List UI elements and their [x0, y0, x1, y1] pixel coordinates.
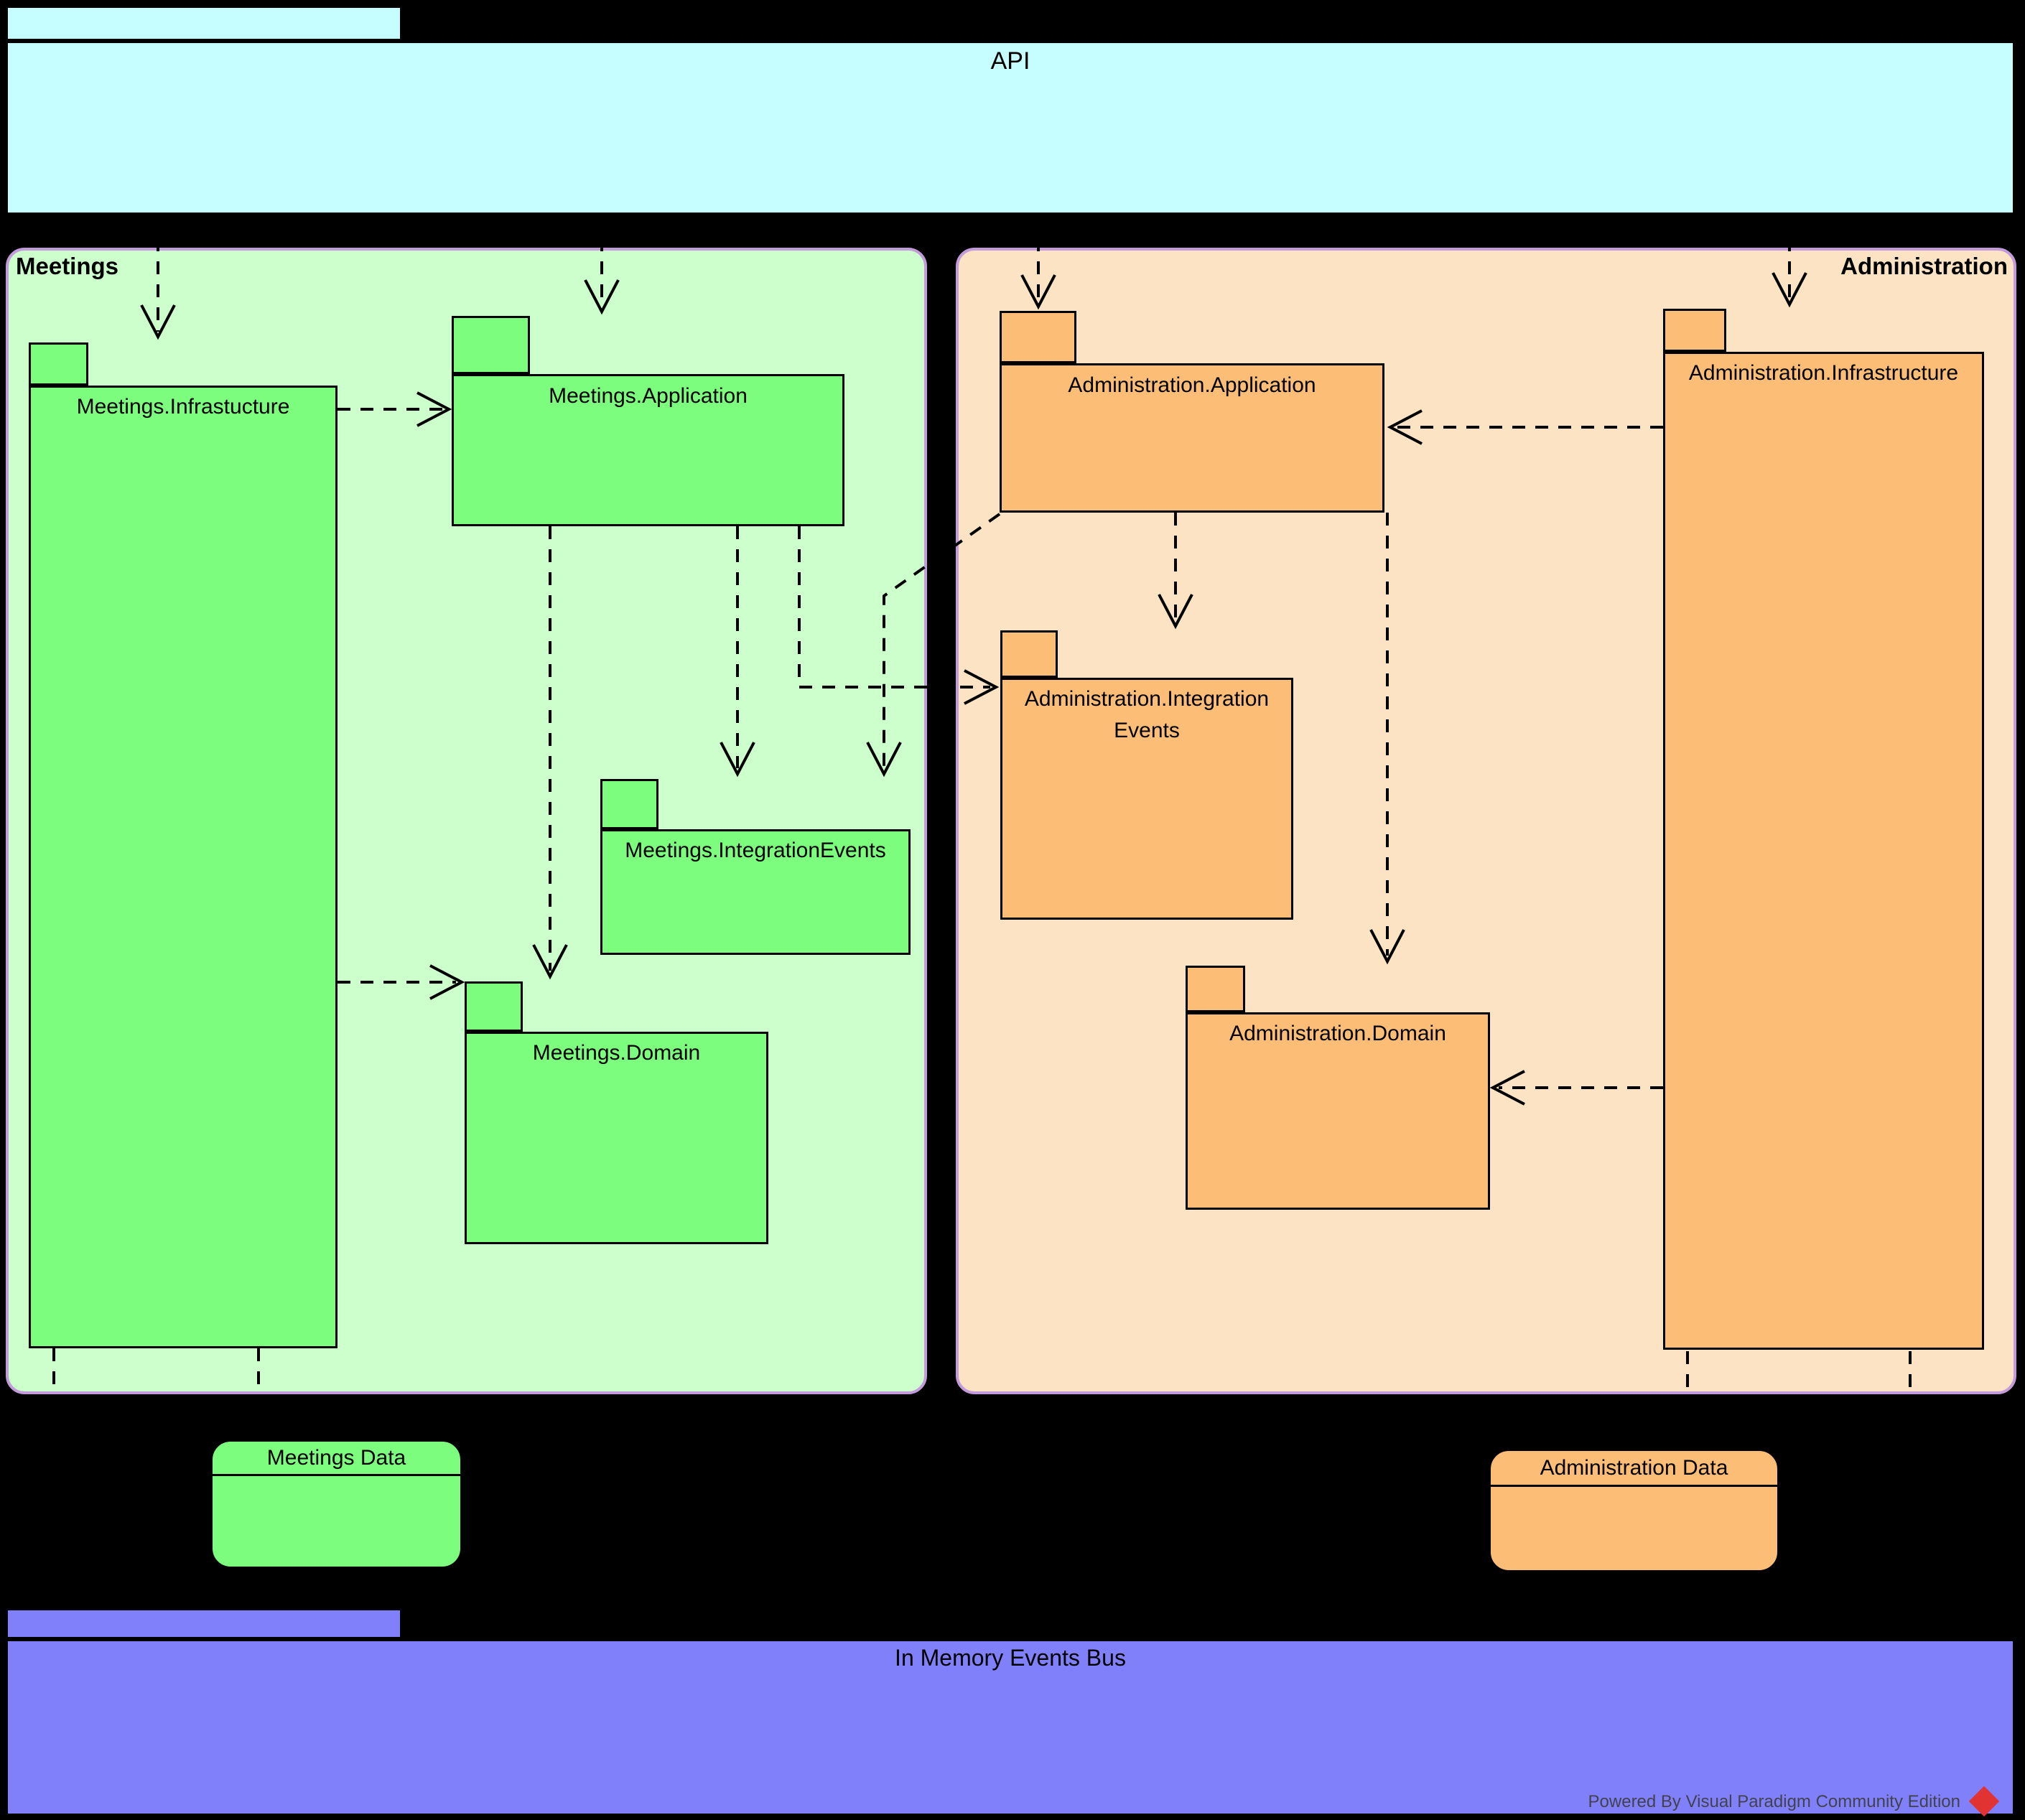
administration-application-label: Administration.Application	[1000, 370, 1384, 401]
meetings-integration-events-label: Meetings.IntegrationEvents	[600, 835, 911, 867]
meetings-data-store: Meetings Data	[210, 1439, 462, 1569]
meetings-domain-tab	[465, 981, 523, 1032]
administration-application-tab	[1000, 311, 1076, 363]
diagram-canvas: API Meetings Administration Meetings.Inf…	[0, 0, 2025, 1820]
administration-container-title: Administration	[1840, 253, 2008, 280]
administration-integration-events-label: Administration.Integration Events	[1000, 683, 1293, 746]
meetings-integration-events-tab	[600, 779, 658, 829]
administration-infrastructure-body	[1663, 352, 1984, 1350]
administration-domain-label: Administration.Domain	[1186, 1018, 1490, 1050]
events-bus-label: In Memory Events Bus	[6, 1645, 2015, 1671]
administration-domain-tab	[1186, 966, 1245, 1012]
api-package-tab	[6, 6, 402, 41]
meetings-application-label: Meetings.Application	[452, 381, 844, 412]
meetings-application-tab	[452, 316, 530, 374]
administration-infrastructure-tab	[1663, 309, 1726, 352]
meetings-data-store-title: Meetings Data	[213, 1442, 460, 1476]
administration-integration-events-tab	[1000, 630, 1058, 678]
events-bus-tab	[6, 1608, 402, 1639]
administration-data-store: Administration Data	[1489, 1449, 1779, 1572]
administration-infrastructure-label: Administration.Infrastructure	[1663, 358, 1984, 389]
meetings-infrastructure-tab	[29, 342, 88, 386]
meetings-container-title: Meetings	[16, 253, 118, 280]
meetings-infrastructure-label: Meetings.Infrastucture	[29, 391, 337, 423]
administration-data-store-title: Administration Data	[1491, 1451, 1777, 1487]
meetings-domain-label: Meetings.Domain	[465, 1037, 768, 1069]
api-package-label: API	[6, 47, 2015, 75]
meetings-infrastructure-body	[29, 386, 337, 1348]
watermark-text: Powered By Visual Paradigm Community Edi…	[1588, 1792, 1960, 1812]
